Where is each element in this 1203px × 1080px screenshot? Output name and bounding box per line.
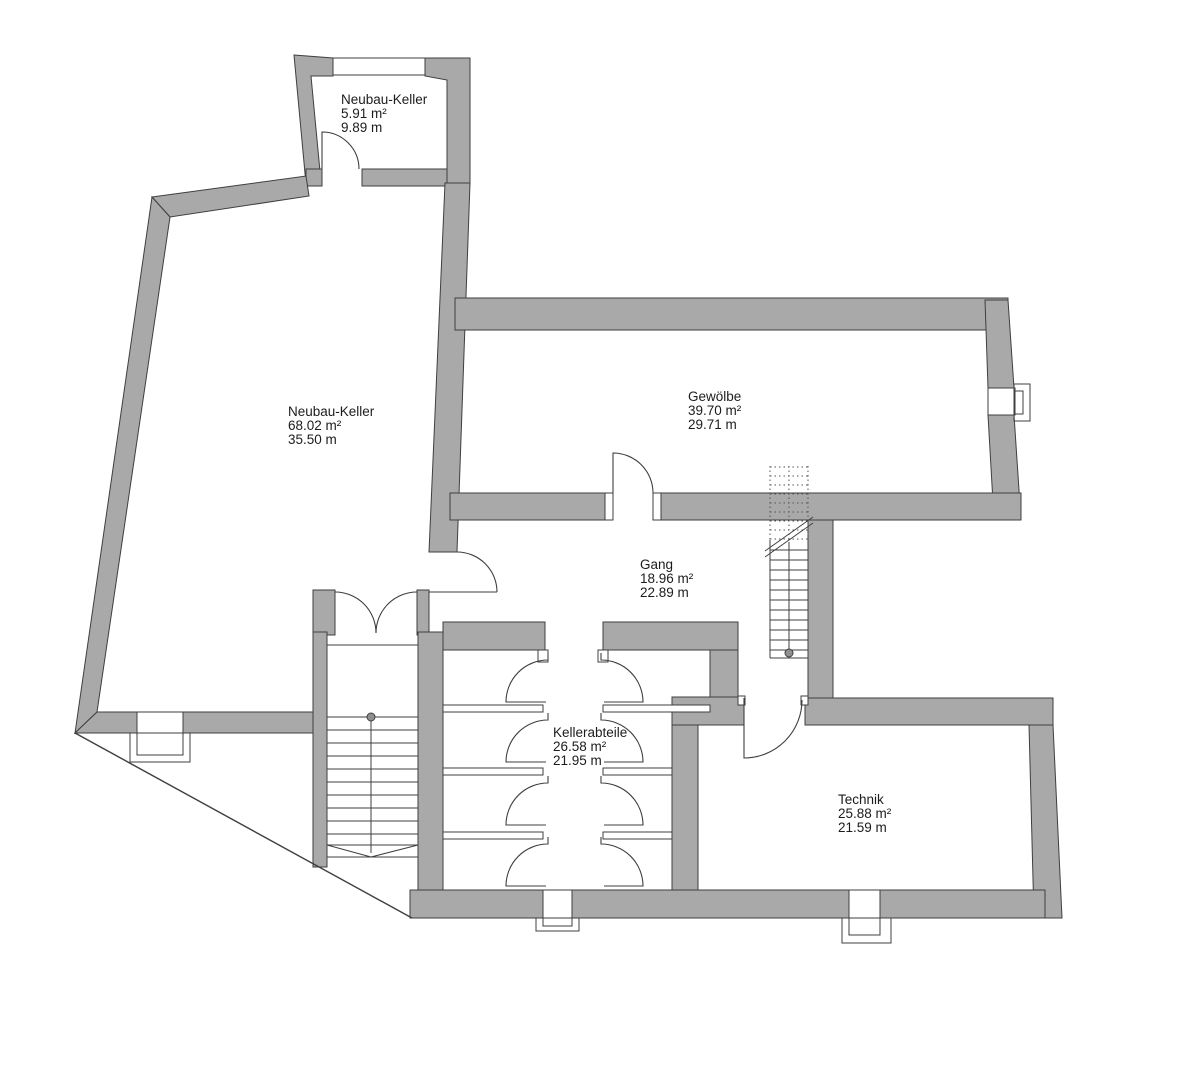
staircase-left-winders [327,845,418,857]
wall-bottom-right [880,890,1045,918]
partition-right-2 [603,768,672,775]
wall-bigroom-bottom [183,712,317,733]
wall-kellerabteile-left [418,632,443,892]
door-double-stair-left [335,592,376,633]
staircase-right-walkline-start [785,649,793,657]
partition-right-1 [603,705,710,712]
wall-stair-left-jamb [313,590,335,635]
room-label-technik: Technik 25.88 m² 21.59 m [838,792,895,835]
wall-smallroom-bottom-left [306,169,322,186]
wall-smallroom-bottom-right [362,169,447,186]
boundary-diagonal [75,733,412,918]
floorplan-drawing: Neubau-Keller 5.91 m² 9.89 m Neubau-Kell… [0,0,1203,1080]
wall-east [808,520,833,698]
wall-stair-mid-stub [417,590,429,635]
room-label-neubau-keller-gross: Neubau-Keller 68.02 m² 35.50 m [288,404,378,447]
wall-gewoelbe-bottom-left [450,493,605,520]
wall-gewoelbe-right-upper [985,300,1014,388]
window-kellerabteile-bottom [543,890,572,918]
window-bigroom-left [137,712,183,733]
door-cell-left-3 [506,776,548,825]
partition-left-3 [443,832,543,839]
door-cell-left-4 [506,837,548,886]
jamb-gewoelbe-door-right [653,493,661,520]
wall-kellerabteile-top-right [603,622,738,650]
door-cell-left-1 [506,653,548,702]
room-label-gewoelbe: Gewölbe 39.70 m² 29.71 m [688,389,745,432]
jamb-gewoelbe-door-left [605,493,613,520]
room-labels: Neubau-Keller 5.91 m² 9.89 m Neubau-Kell… [288,92,895,835]
wall-gewoelbe-bottom-right [661,493,1021,520]
partition-left-2 [443,768,543,775]
partition-right-3 [603,832,672,839]
floorplan-canvas: Neubau-Keller 5.91 m² 9.89 m Neubau-Kell… [0,0,1203,1080]
staircase-left [327,645,418,857]
wall-bigroom-left [75,197,170,733]
door-cell-left-2 [506,713,548,762]
wall-technik-right [1029,725,1062,918]
window-frame-bigroom-left-inner [137,733,183,755]
door-bigroom-to-gang [429,552,497,592]
window-frame-kellerabteile-inner [543,918,572,926]
staircase-left-walkline-start [367,713,375,721]
door-cell-right-1 [601,653,643,702]
wall-kellerabteile-right-lower [672,725,698,892]
door-double-stair-right [376,592,417,633]
wall-technik-top [805,698,1053,725]
wall-kellerabteile-right-upper [710,650,738,698]
wall-stair-left [313,632,327,867]
window-smallroom-top [333,58,425,75]
wall-smallroom-right [425,58,470,185]
wall-bottom-mid [572,890,849,918]
wall-smallroom-topleft [294,55,333,184]
staircase-left-treads [327,717,418,845]
window-frame-kellerabteile-outer [536,918,579,931]
window-frame-bigroom-left-outer [130,733,190,762]
door-cell-right-4 [601,837,643,886]
door-cell-right-3 [601,776,643,825]
walls [75,55,1062,918]
window-frame-gewoelbe-outer [1014,384,1030,421]
window-gewoelbe-right [988,388,1015,415]
door-smallroom [322,132,359,169]
wall-kellerabteile-top-left [443,622,545,650]
window-frames [130,384,1030,943]
wall-gewoelbe-top [455,298,1008,330]
partition-left-1 [443,705,543,712]
window-frame-technik-inner [849,918,880,935]
room-label-gang: Gang 18.96 m² 22.89 m [640,557,697,600]
wall-bottom-left [410,890,543,918]
wall-bigroom-top [152,176,309,217]
room-label-neubau-keller-klein: Neubau-Keller 5.91 m² 9.89 m [341,92,431,135]
window-technik-bottom [849,890,880,918]
door-gewoelbe [613,453,653,493]
door-technik [744,698,802,758]
